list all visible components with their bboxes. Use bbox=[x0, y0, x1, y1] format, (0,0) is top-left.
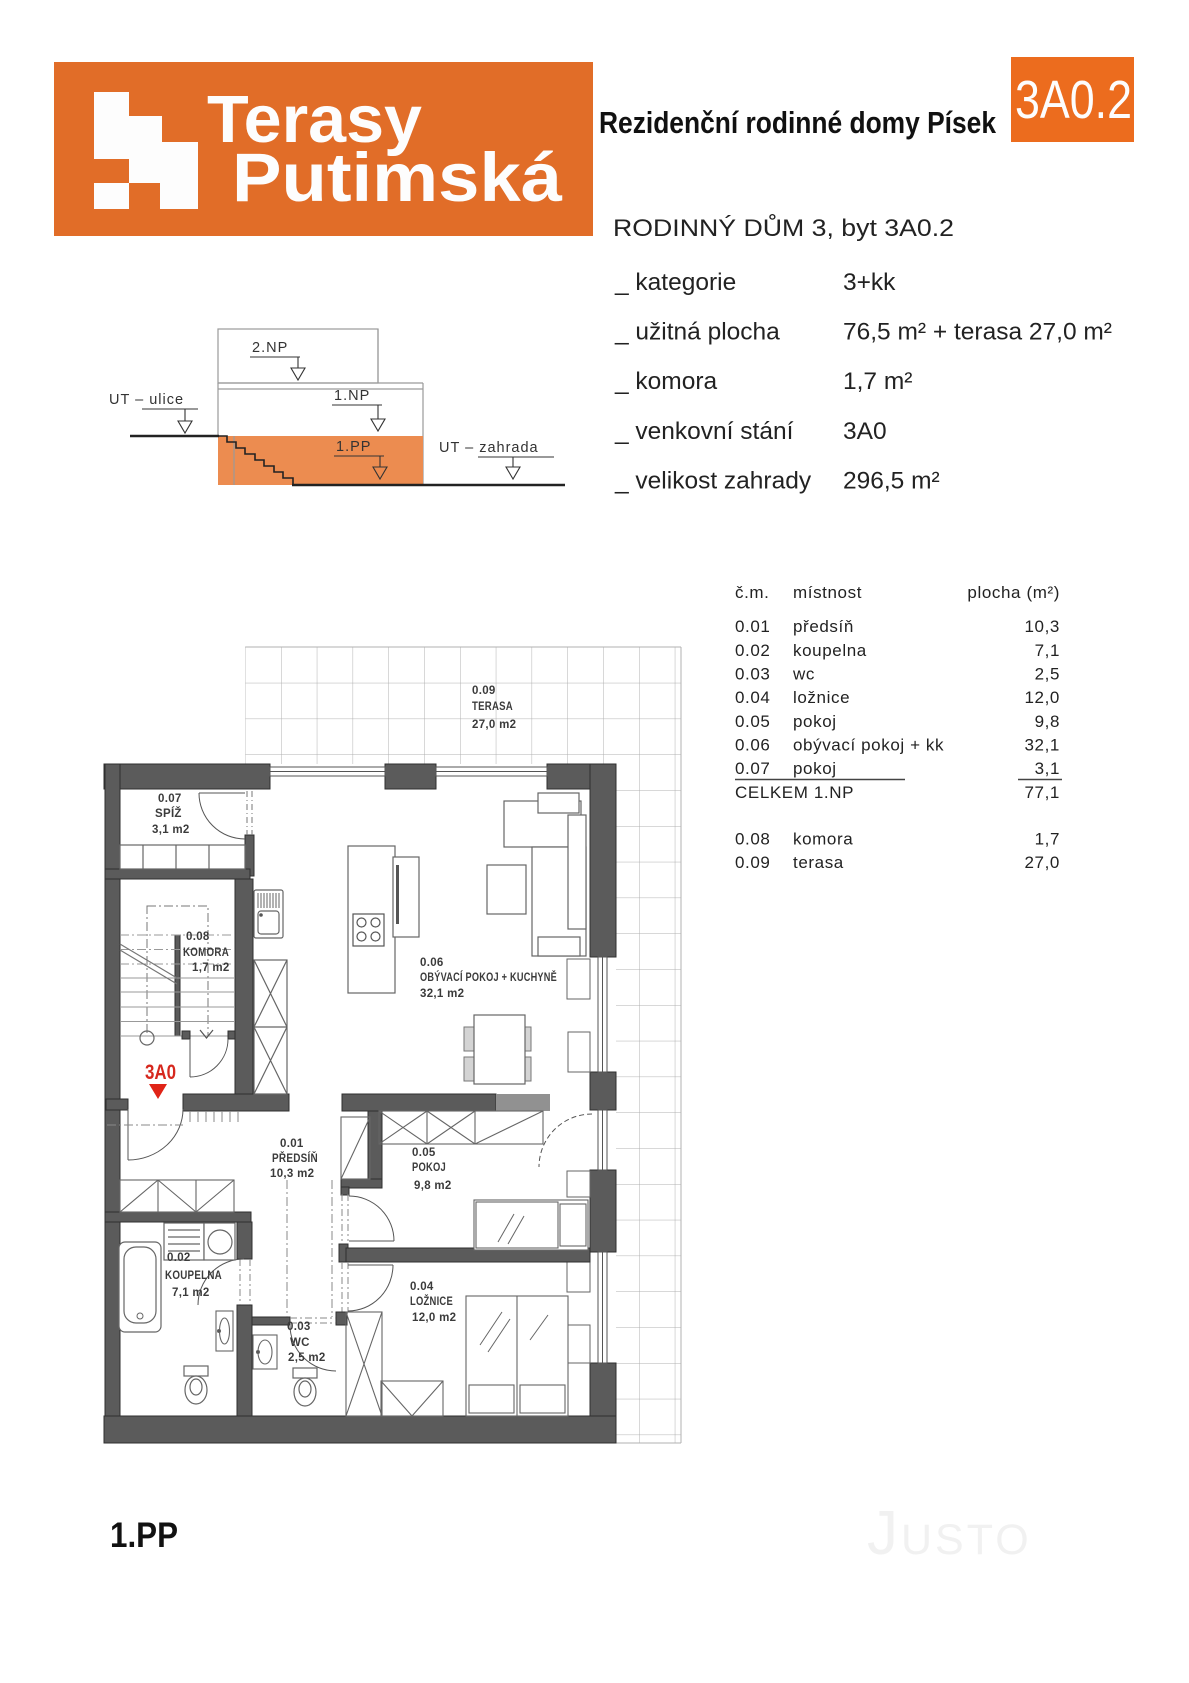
svg-text:CELKEM 1.NP: CELKEM 1.NP bbox=[735, 783, 854, 802]
svg-text:2.NP: 2.NP bbox=[252, 340, 288, 356]
svg-text:_ venkovní stání: _ venkovní stání bbox=[614, 418, 794, 445]
svg-text:0.03: 0.03 bbox=[735, 665, 771, 684]
svg-text:0.06: 0.06 bbox=[420, 957, 444, 969]
svg-text:296,5 m²: 296,5 m² bbox=[843, 467, 940, 494]
svg-text:_ užitná plocha: _ užitná plocha bbox=[614, 319, 780, 346]
svg-text:3+kk: 3+kk bbox=[843, 269, 896, 296]
svg-text:wc: wc bbox=[792, 665, 815, 684]
svg-text:0.09: 0.09 bbox=[472, 685, 496, 697]
svg-text:předsíň: předsíň bbox=[793, 617, 854, 636]
svg-text:0.07: 0.07 bbox=[158, 793, 182, 805]
svg-text:0.05: 0.05 bbox=[412, 1147, 436, 1159]
svg-text:SPÍŽ: SPÍŽ bbox=[155, 807, 182, 820]
svg-text:pokoj: pokoj bbox=[793, 759, 837, 778]
svg-text:Justo: Justo bbox=[867, 1499, 1032, 1568]
svg-text:0.09: 0.09 bbox=[735, 853, 771, 872]
svg-text:0.04: 0.04 bbox=[410, 1281, 434, 1293]
svg-text:10,3: 10,3 bbox=[1025, 617, 1061, 636]
svg-text:27,0: 27,0 bbox=[1025, 853, 1061, 872]
svg-text:RODINNÝ DŮM 3, byt 3A0.2: RODINNÝ DŮM 3, byt 3A0.2 bbox=[613, 213, 954, 242]
svg-text:TERASA: TERASA bbox=[472, 701, 513, 713]
svg-text:3A0: 3A0 bbox=[145, 1061, 176, 1084]
svg-text:1,7 m2: 1,7 m2 bbox=[192, 962, 230, 974]
svg-text:1.PP: 1.PP bbox=[336, 439, 371, 455]
svg-text:7,1: 7,1 bbox=[1035, 641, 1060, 660]
svg-text:místnost: místnost bbox=[793, 583, 862, 602]
svg-text:0.01: 0.01 bbox=[280, 1138, 304, 1150]
svg-text:10,3 m2: 10,3 m2 bbox=[270, 1168, 314, 1180]
svg-text:0.07: 0.07 bbox=[735, 759, 771, 778]
svg-text:3A0.2: 3A0.2 bbox=[1015, 70, 1132, 130]
svg-text:OBÝVACÍ POKOJ + KUCHYNĚ: OBÝVACÍ POKOJ + KUCHYNĚ bbox=[420, 971, 557, 984]
svg-text:76,5 m² + terasa 27,0 m²: 76,5 m² + terasa 27,0 m² bbox=[843, 319, 1112, 346]
svg-text:0.06: 0.06 bbox=[735, 735, 771, 754]
svg-text:Putimská: Putimská bbox=[232, 139, 563, 216]
svg-text:koupelna: koupelna bbox=[793, 641, 867, 660]
svg-text:12,0: 12,0 bbox=[1025, 688, 1061, 707]
svg-text:0.02: 0.02 bbox=[735, 641, 771, 660]
svg-text:KOUPELNA: KOUPELNA bbox=[165, 1270, 222, 1282]
svg-text:9,8 m2: 9,8 m2 bbox=[414, 1180, 452, 1192]
svg-text:0.04: 0.04 bbox=[735, 688, 771, 707]
svg-text:0.08: 0.08 bbox=[735, 830, 771, 849]
svg-text:0.03: 0.03 bbox=[287, 1321, 311, 1333]
svg-text:7,1 m2: 7,1 m2 bbox=[172, 1287, 210, 1299]
svg-text:terasa: terasa bbox=[793, 853, 844, 872]
svg-text:3,1 m2: 3,1 m2 bbox=[152, 824, 190, 836]
svg-text:UT – ulice: UT – ulice bbox=[109, 392, 184, 408]
svg-text:obývací pokoj + kk: obývací pokoj + kk bbox=[793, 735, 944, 754]
svg-text:_ velikost zahrady: _ velikost zahrady bbox=[614, 467, 812, 494]
svg-text:KOMORA: KOMORA bbox=[183, 947, 229, 959]
svg-text:ložnice: ložnice bbox=[793, 688, 850, 707]
svg-text:0.01: 0.01 bbox=[735, 617, 771, 636]
svg-text:LOŽNICE: LOŽNICE bbox=[410, 1295, 453, 1308]
svg-text:3A0: 3A0 bbox=[843, 418, 887, 445]
svg-text:12,0 m2: 12,0 m2 bbox=[412, 1312, 456, 1324]
svg-text:27,0 m2: 27,0 m2 bbox=[472, 719, 516, 731]
svg-text:UT – zahrada: UT – zahrada bbox=[439, 440, 539, 456]
svg-text:_ komora: _ komora bbox=[614, 368, 718, 395]
svg-text:č.m.: č.m. bbox=[735, 583, 770, 602]
svg-text:1,7 m²: 1,7 m² bbox=[843, 368, 912, 395]
svg-text:0.05: 0.05 bbox=[735, 712, 771, 731]
svg-text:POKOJ: POKOJ bbox=[412, 1162, 446, 1174]
svg-text:Rezidenční rodinné domy Písek: Rezidenční rodinné domy Písek bbox=[599, 105, 997, 140]
svg-text:1.NP: 1.NP bbox=[334, 388, 370, 404]
svg-text:WC: WC bbox=[290, 1337, 310, 1349]
svg-text:3,1: 3,1 bbox=[1035, 759, 1060, 778]
svg-text:plocha (m²): plocha (m²) bbox=[967, 583, 1060, 602]
svg-text:9,8: 9,8 bbox=[1035, 712, 1060, 731]
svg-text:2,5 m2: 2,5 m2 bbox=[288, 1352, 326, 1364]
svg-text:0.08: 0.08 bbox=[186, 931, 210, 943]
svg-text:32,1: 32,1 bbox=[1025, 735, 1061, 754]
svg-text:_ kategorie: _ kategorie bbox=[614, 269, 736, 296]
svg-text:32,1 m2: 32,1 m2 bbox=[420, 988, 464, 1000]
svg-text:0.02: 0.02 bbox=[167, 1252, 191, 1264]
svg-text:1,7: 1,7 bbox=[1035, 830, 1060, 849]
svg-text:77,1: 77,1 bbox=[1025, 783, 1061, 802]
svg-text:PŘEDSÍŇ: PŘEDSÍŇ bbox=[272, 1152, 318, 1165]
svg-text:komora: komora bbox=[793, 830, 853, 849]
svg-text:2,5: 2,5 bbox=[1035, 665, 1060, 684]
svg-text:1.PP: 1.PP bbox=[110, 1516, 178, 1555]
svg-text:pokoj: pokoj bbox=[793, 712, 837, 731]
